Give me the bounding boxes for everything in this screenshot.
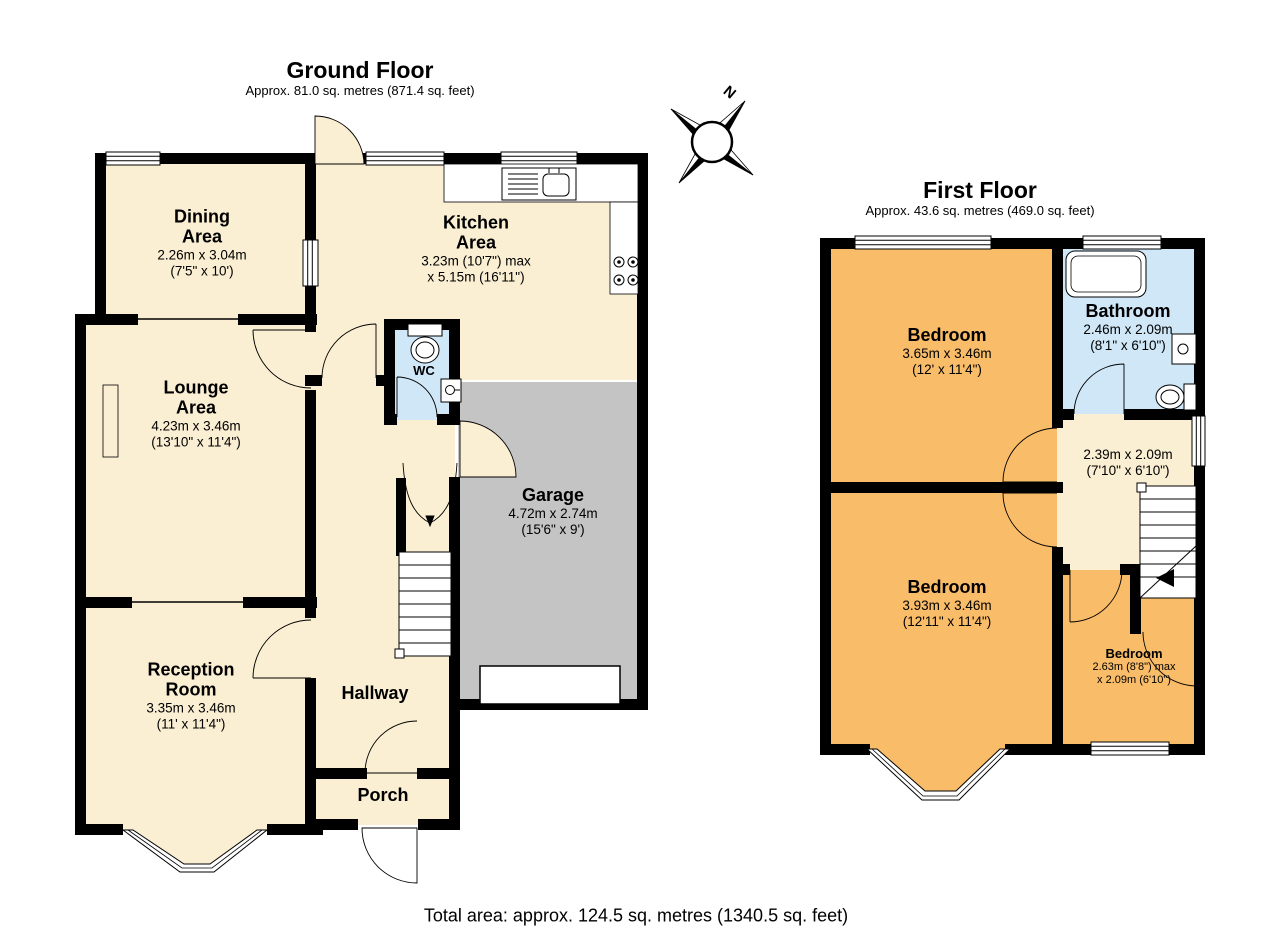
- first-floor-title: First Floor Approx. 43.6 sq. metres (469…: [865, 177, 1094, 219]
- room-label-dining: Dining Area 2.26m x 3.04m (7'5" x 10'): [157, 207, 246, 278]
- first-floor-staircase: [1137, 483, 1196, 598]
- room-label-hallway: Hallway: [341, 684, 408, 704]
- total-area-text: Total area: approx. 124.5 sq. metres (13…: [424, 906, 848, 927]
- kitchen-sink-icon: [502, 168, 576, 200]
- ground-floor-title: Ground Floor Approx. 81.0 sq. metres (87…: [245, 57, 474, 99]
- room-label-reception: Reception Room 3.35m x 3.46m (11' x 11'4…: [146, 660, 235, 731]
- room-label-bedroom1: Bedroom 3.65m x 3.46m (12' x 11'4"): [902, 326, 991, 378]
- wc-sink-icon: [441, 379, 461, 402]
- ground-floor-title-text: Ground Floor: [245, 57, 474, 83]
- room-label-porch: Porch: [357, 786, 408, 806]
- bathroom-toilet-icon: [1156, 384, 1196, 410]
- back-door-arc: [315, 116, 364, 164]
- floorplan-page: Ground Floor Approx. 81.0 sq. metres (87…: [0, 0, 1280, 931]
- room-label-lounge: Lounge Area 4.23m x 3.46m (13'10" x 11'4…: [151, 378, 241, 449]
- room-label-garage: Garage 4.72m x 2.74m (15'6" x 9'): [508, 486, 597, 538]
- room-label-bathroom: Bathroom 2.46m x 2.09m (8'1" x 6'10"): [1083, 302, 1172, 354]
- room-label-bedroom3: Bedroom 2.63m (8'8") max x 2.09m (6'10"): [1092, 647, 1175, 687]
- room-label-kitchen: Kitchen Area 3.23m (10'7") max x 5.15m (…: [421, 213, 530, 284]
- room-label-landing: 2.39m x 2.09m (7'10" x 6'10"): [1083, 447, 1172, 479]
- garage-door: [480, 666, 620, 704]
- room-label-wc: WC: [413, 364, 435, 378]
- toilet-icon: [408, 324, 442, 363]
- first-floor-title-text: First Floor: [865, 177, 1094, 203]
- ground-floor-subtitle-text: Approx. 81.0 sq. metres (871.4 sq. feet): [245, 83, 474, 99]
- first-floor-subtitle-text: Approx. 43.6 sq. metres (469.0 sq. feet): [865, 203, 1094, 219]
- staircase: [395, 552, 451, 658]
- compass-icon: [671, 101, 753, 183]
- front-door-arc: [362, 828, 417, 883]
- room-label-bedroom2: Bedroom 3.93m x 3.46m (12'11" x 11'4"): [902, 578, 991, 630]
- bathtub-icon: [1066, 251, 1146, 297]
- chimney-breast: [103, 385, 118, 457]
